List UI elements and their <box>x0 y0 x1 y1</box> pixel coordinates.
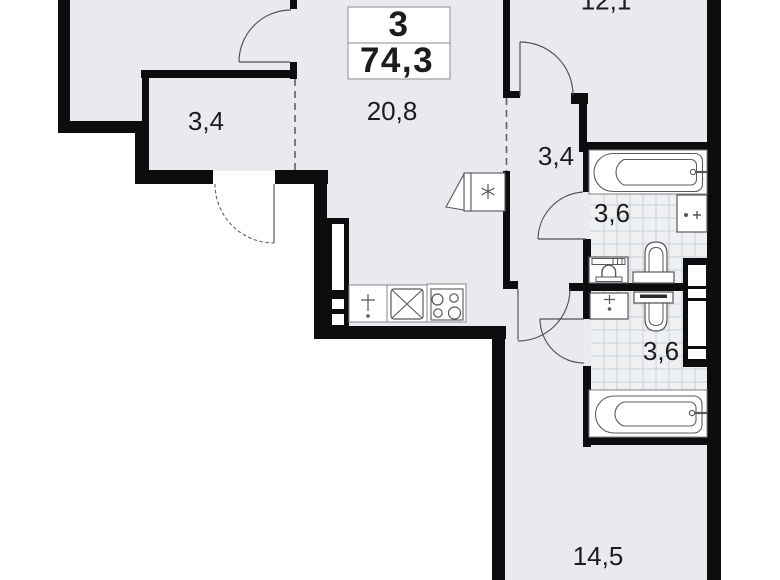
svg-text:3,6: 3,6 <box>643 336 679 366</box>
svg-text:3,4: 3,4 <box>538 141 574 171</box>
svg-text:74,3: 74,3 <box>360 41 434 80</box>
svg-text:12,1: 12,1 <box>581 0 632 16</box>
svg-text:14,5: 14,5 <box>573 541 624 571</box>
svg-text:20,8: 20,8 <box>367 96 418 126</box>
svg-text:3,6: 3,6 <box>594 198 630 228</box>
svg-text:3,4: 3,4 <box>188 106 224 136</box>
svg-text:3: 3 <box>389 5 410 44</box>
